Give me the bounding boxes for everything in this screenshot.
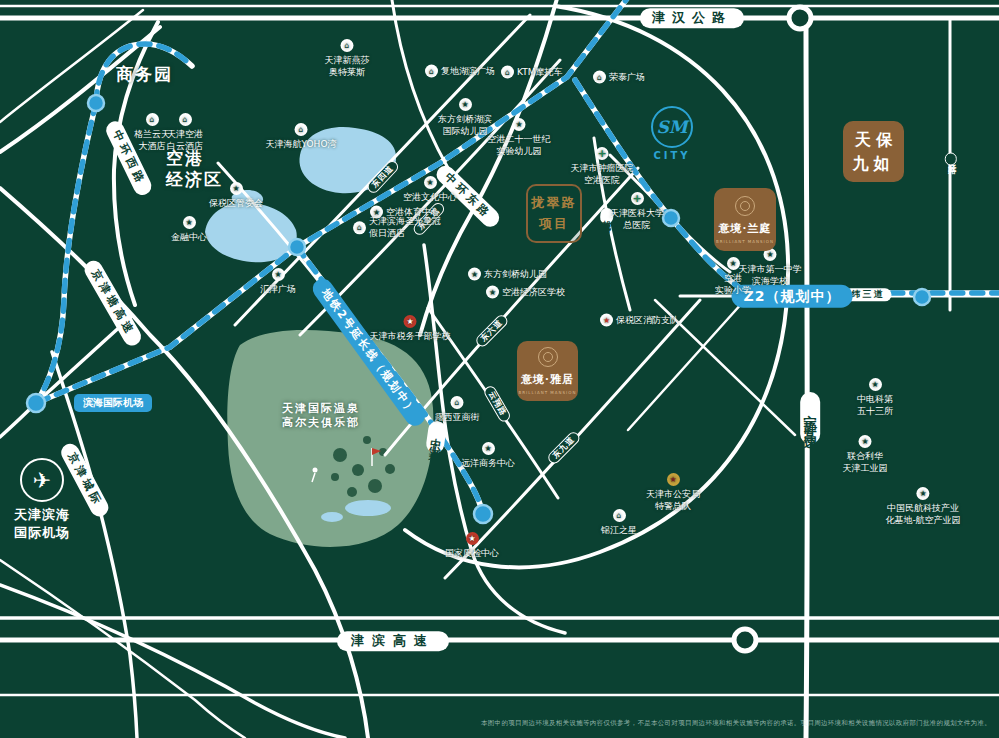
red-star-icon: ★ <box>404 315 417 328</box>
poi-label: 天津新燕莎 奥特莱斯 <box>325 55 370 78</box>
project-box: 天保 九如 <box>843 121 904 182</box>
metro-station-tag: 滨海国际机场 <box>74 394 152 412</box>
map-poi: ⌂天津新燕莎 奥特莱斯 <box>325 39 370 78</box>
poi-label: 远洋商务中心 <box>461 458 515 470</box>
golf-course-shape <box>227 330 433 547</box>
star-icon: ★ <box>272 268 285 281</box>
poi-label: 天津市公安局 特警总队 <box>646 489 700 512</box>
map-poi: ★国家质检中心 <box>445 532 499 560</box>
building-icon: ⌂ <box>294 123 307 136</box>
poi-label: 金融中心 <box>171 232 207 244</box>
project-name: 意境·兰庭 <box>719 221 772 236</box>
poi-label: 空港 实验小学 <box>715 273 751 296</box>
sm-city-sm-text: SM <box>656 117 687 137</box>
poi-label: 天津市肿瘤医院 空港医院 <box>571 163 634 186</box>
building-icon: ⌂ <box>501 66 514 79</box>
star-icon: ★ <box>917 487 930 500</box>
poi-label: 东方剑桥幼儿园 <box>484 268 547 280</box>
airport-name: 天津滨海 国际机场 <box>14 506 70 541</box>
project-box: 意境·兰庭BRILLIANT MANSION <box>714 188 776 251</box>
star-icon: ★ <box>482 442 495 455</box>
map-poi: ★空港二十一世纪 实验幼儿园 <box>488 118 551 157</box>
police-icon: ★ <box>667 473 680 486</box>
poi-label: 中电科第 五十三所 <box>857 394 893 417</box>
area-label-shangwuyuan: 商务园 <box>116 64 173 85</box>
map-poi: ⌂天津滨海圣光皇冠 假日酒店 <box>353 216 441 239</box>
poi-label: 联合利华 天津工业园 <box>843 451 888 474</box>
road-label-pill: 津滨高速 <box>337 631 449 651</box>
poi-label: 天津海航YOHO湾 <box>266 139 337 151</box>
interchange-rings <box>734 7 811 651</box>
map-poi: ★金融中心 <box>171 216 207 244</box>
poi-label: 天津市税务干部学校 <box>370 331 451 343</box>
building-icon: ⌂ <box>425 65 438 78</box>
poi-label: 保税区消防支队 <box>616 314 679 326</box>
map-poi: ★空港文化中心 <box>403 176 457 204</box>
map-poi: ★天津市税务干部学校 <box>370 315 451 343</box>
school-icon: ★ <box>727 257 740 270</box>
map-poi: ★天津市公安局 特警总队 <box>646 473 700 512</box>
project-name-en: BRILLIANT MANSION <box>716 239 774 244</box>
star-icon: ★ <box>869 378 882 391</box>
building-icon: ⌂ <box>179 113 192 126</box>
poi-label: 空港二十一世纪 实验幼儿园 <box>488 134 551 157</box>
building-icon: ⌂ <box>146 113 159 126</box>
map-canvas <box>0 0 999 738</box>
project-emblem-icon <box>538 347 558 367</box>
poi-label: 中国民航科技产业 化基地-航空产业园 <box>885 503 960 526</box>
project-name: 拢翠路 项目 <box>532 193 577 235</box>
map-poi: ★远洋商务中心 <box>461 442 515 470</box>
school-icon: ★ <box>486 286 499 299</box>
star-icon: ★ <box>183 216 196 229</box>
map-poi: ★中国民航科技产业 化基地-航空产业园 <box>885 487 960 526</box>
poi-label: 露西亚商街 <box>435 412 480 424</box>
sm-city-city-text: CITY <box>651 150 693 161</box>
sm-city-ring-icon: SM <box>651 106 693 148</box>
map-poi: +天津市肿瘤医院 空港医院 <box>571 147 634 186</box>
disclaimer-text: 本图中的项目周边环境及相关设施等内容仅供参考，不是本公司对项目周边环境和相关设施… <box>481 719 991 728</box>
location-map: 商务园空港 经济区天津国际温泉 高尔夫俱乐部津汉公路中环西路中环东路京津塘高速京… <box>0 0 999 738</box>
area-label-golf-club: 天津国际温泉 高尔夫俱乐部 <box>282 402 360 430</box>
cross-icon: + <box>631 192 644 205</box>
map-poi: +天津医科大学 总医院 <box>610 192 664 231</box>
fire-icon: ★ <box>600 314 613 327</box>
project-name-en: BRILLIANT MANSION <box>519 390 577 395</box>
airplane-icon: ✈ <box>20 458 64 502</box>
airport-badge: ✈ 天津滨海 国际机场 <box>14 458 70 541</box>
map-poi: ★空港经济区学校 <box>486 286 565 299</box>
sm-city-logo: SM CITY <box>651 106 693 161</box>
poi-label: 复地湖滨广场 <box>441 65 495 77</box>
poi-label: 国家质检中心 <box>445 548 499 560</box>
poi-label: 空港文化中心 <box>403 192 457 204</box>
map-poi: ★中电科第 五十三所 <box>857 378 893 417</box>
poi-label: 天津滨海圣光皇冠 假日酒店 <box>369 216 441 239</box>
poi-label: 荣泰广场 <box>609 71 645 83</box>
poi-label: 天津医科大学 总医院 <box>610 208 664 231</box>
star-icon: ★ <box>230 182 243 195</box>
poi-label: 格兰云天 大酒店 <box>134 129 170 152</box>
map-poi: ⌂复地湖滨广场 <box>425 65 495 78</box>
map-poi: ⌂KTM摩托车 <box>501 66 562 79</box>
map-poi: ★汇津广场 <box>260 268 296 296</box>
building-icon: ⌂ <box>341 39 354 52</box>
map-poi: ⌂天津空港 白云酒店 <box>167 113 203 152</box>
poi-label: 保税区管委会 <box>209 198 263 210</box>
building-icon: ⌂ <box>353 222 366 235</box>
red-star-icon: ★ <box>466 532 479 545</box>
poi-label: 空港经济区学校 <box>502 286 565 298</box>
poi-label: 天津空港 白云酒店 <box>167 129 203 152</box>
project-box: 意境·雅居BRILLIANT MANSION <box>517 341 578 401</box>
map-poi: ★保税区消防支队 <box>600 314 679 327</box>
road-network <box>0 0 999 738</box>
map-poi: ★东方剑桥湖滨 国际幼儿园 <box>438 98 492 137</box>
map-poi: ⌂格兰云天 大酒店 <box>134 113 170 152</box>
building-icon: ⌂ <box>451 396 464 409</box>
map-poi: ★东方剑桥幼儿园 <box>468 268 547 281</box>
poi-label: 东方剑桥湖滨 国际幼儿园 <box>438 114 492 137</box>
school-icon: ★ <box>459 98 472 111</box>
poi-label: KTM摩托车 <box>517 66 562 78</box>
project-box: 拢翠路 项目 <box>526 184 582 243</box>
poi-label: 汇津广场 <box>260 284 296 296</box>
star-icon: ★ <box>424 176 437 189</box>
building-icon: ⌂ <box>613 509 626 522</box>
map-poi: ★保税区管委会 <box>209 182 263 210</box>
project-emblem-icon <box>735 196 755 216</box>
map-poi: ★联合利华 天津工业园 <box>843 435 888 474</box>
school-icon: ★ <box>513 118 526 131</box>
project-name: 天保 九如 <box>850 128 897 176</box>
project-name: 意境·雅居 <box>521 372 574 387</box>
map-poi: ⌂露西亚商街 <box>435 396 480 424</box>
map-poi: ⌂天津海航YOHO湾 <box>266 123 337 151</box>
cross-icon: + <box>596 147 609 160</box>
map-poi: ⌂锦江之星 <box>601 509 637 537</box>
star-icon: ★ <box>859 435 872 448</box>
road-label-pill: 津汉公路 <box>640 8 744 28</box>
road-label-pill: 宁静高速 <box>800 392 820 444</box>
map-poi: ★空港 实验小学 <box>715 257 751 296</box>
school-icon: ★ <box>468 268 481 281</box>
building-icon: ⌂ <box>593 71 606 84</box>
poi-label: 锦江之星 <box>601 525 637 537</box>
map-poi: ⌂荣泰广场 <box>593 71 645 84</box>
